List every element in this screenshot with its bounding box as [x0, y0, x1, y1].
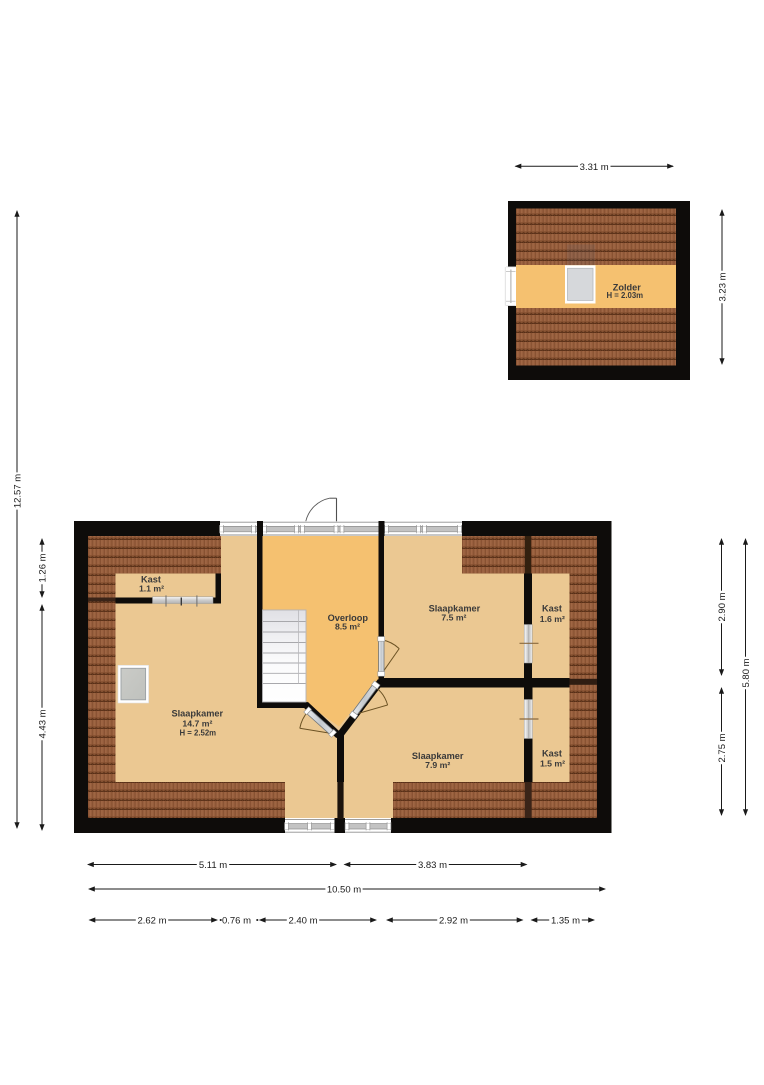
svg-text:1.1 m²: 1.1 m²: [139, 584, 164, 594]
svg-text:10.50 m: 10.50 m: [327, 885, 361, 896]
svg-text:7.5 m²: 7.5 m²: [441, 612, 466, 622]
svg-text:Kast: Kast: [542, 604, 562, 614]
svg-text:3.83 m: 3.83 m: [418, 860, 447, 871]
svg-text:5.11 m: 5.11 m: [199, 860, 227, 871]
svg-text:1.5 m²: 1.5 m²: [540, 759, 565, 769]
svg-text:2.90 m: 2.90 m: [717, 592, 728, 621]
svg-text:5.80 m: 5.80 m: [741, 658, 752, 687]
svg-text:14.7 m²: 14.7 m²: [182, 718, 212, 728]
svg-text:Slaapkamer: Slaapkamer: [172, 708, 224, 718]
svg-text:1.26 m: 1.26 m: [38, 553, 49, 582]
svg-text:12.57 m: 12.57 m: [13, 474, 24, 508]
svg-text:7.9 m²: 7.9 m²: [425, 760, 450, 770]
svg-text:0.76 m: 0.76 m: [222, 916, 251, 927]
svg-text:4.43 m: 4.43 m: [38, 709, 49, 738]
svg-text:2.92 m: 2.92 m: [439, 916, 468, 927]
svg-text:2.62 m: 2.62 m: [137, 916, 166, 927]
svg-text:Kast: Kast: [542, 748, 562, 758]
svg-text:2.40 m: 2.40 m: [288, 916, 317, 927]
svg-text:1.35 m: 1.35 m: [551, 916, 580, 927]
svg-text:H = 2.52m: H = 2.52m: [179, 729, 216, 738]
svg-text:2.75 m: 2.75 m: [717, 733, 728, 762]
svg-text:H = 2.03m: H = 2.03m: [606, 291, 643, 300]
svg-text:8.5 m²: 8.5 m²: [335, 622, 360, 632]
svg-text:3.31 m: 3.31 m: [580, 162, 609, 173]
svg-text:3.23 m: 3.23 m: [718, 272, 729, 301]
svg-text:1.6 m²: 1.6 m²: [540, 614, 565, 624]
